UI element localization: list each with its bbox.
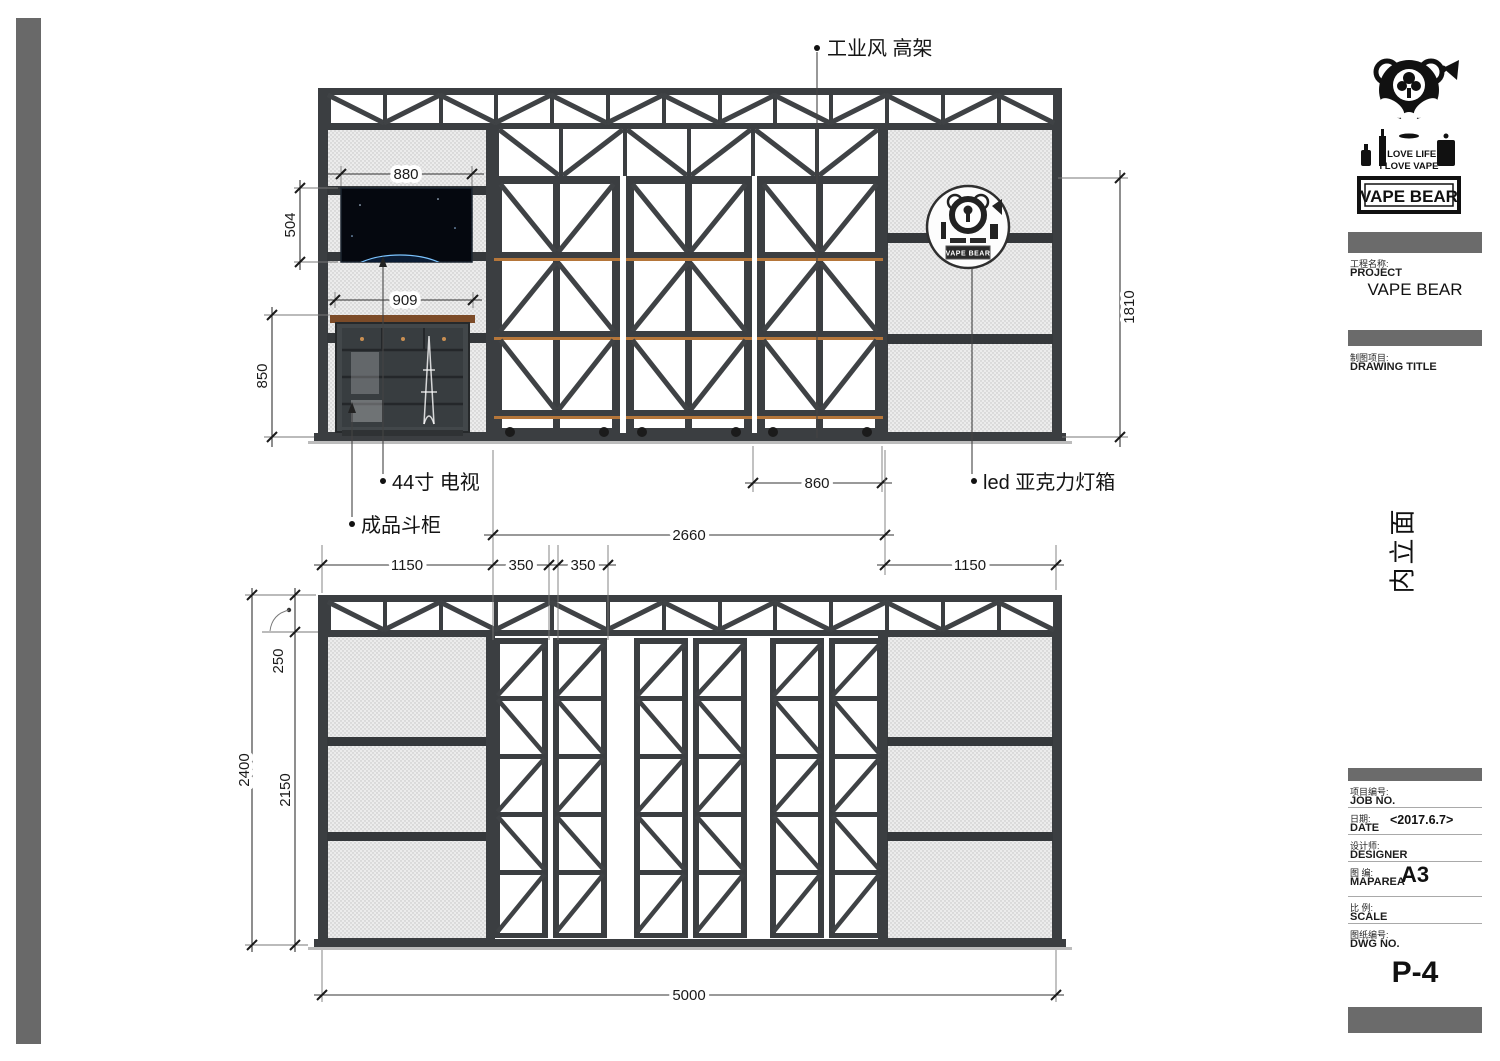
shelf-rack-1 [494, 176, 620, 437]
dim-cabinet-height: 850 [254, 363, 271, 388]
titleblock-separator [1348, 834, 1482, 835]
logo-tagline-2: I LOVE VAPE [1380, 161, 1439, 172]
logo-brand-text: VAPE BEAR [1360, 187, 1458, 206]
logo-tagline-1: I LOVE LIFE [1382, 149, 1436, 160]
dim-total-height: 2400 [236, 753, 253, 786]
label-industrial-shelf: 工业风 高架 [827, 37, 933, 60]
scale-label-en: SCALE [1350, 911, 1387, 923]
upper-right-mesh-panel [887, 129, 1053, 433]
titleblock-bar-2 [1348, 330, 1482, 346]
titleblock-separator [1348, 807, 1482, 808]
titleblock-bar-3 [1348, 768, 1482, 781]
upper-elevation: VAPE BEAR 880 504 [254, 37, 1138, 537]
lightbox-badge-text: VAPE BEAR [946, 251, 991, 258]
dim-tv-width: 880 [393, 166, 418, 183]
elevation-drawings: VAPE BEAR 880 504 [0, 0, 1500, 1061]
dim-cabinet-width: 909 [392, 292, 417, 309]
titleblock-separator [1348, 923, 1482, 924]
titleblock-separator [1348, 896, 1482, 897]
led-lightbox-logo: VAPE BEAR [927, 186, 1009, 268]
dim-total-width: 5000 [672, 987, 705, 1004]
dim-truss-height: 250 [270, 648, 287, 673]
lattice-column-4 [693, 638, 747, 938]
upper-wall-band [495, 129, 876, 176]
dim-mid-width: 2660 [672, 527, 705, 544]
project-value: VAPE BEAR [1348, 280, 1482, 300]
date-value: <2017.6.7> [1390, 813, 1453, 827]
lower-left-mesh-panel [327, 636, 490, 939]
sheet-number: P-4 [1348, 956, 1482, 990]
lattice-column-6 [829, 638, 883, 938]
job-no-label-en: JOB NO. [1350, 795, 1395, 807]
dim-tv-height: 504 [282, 212, 299, 237]
shelf-rack-2 [626, 176, 752, 437]
drawing-sheet: VAPE BEAR 880 504 [0, 0, 1500, 1061]
dim-right-panel-width: 1150 [954, 557, 986, 574]
dim-left-panel-width: 1150 [391, 557, 423, 574]
dim-rack-width: 860 [804, 475, 829, 492]
lattice-column-2 [553, 638, 607, 938]
lower-right-mesh-panel [887, 636, 1053, 939]
dim-lightbox-height: 1810 [1121, 290, 1138, 323]
maparea-value: A3 [1348, 862, 1482, 888]
label-cabinet: 成品斗柜 [361, 514, 441, 537]
orientation-label: 内立面 [1388, 503, 1418, 598]
titleblock-bar-4 [1348, 1007, 1482, 1033]
vape-bear-logo: I LOVE LIFE I LOVE VAPE VAPE BEAR [1353, 40, 1465, 218]
dim-column-a: 350 [508, 557, 533, 574]
titleblock-bar-1 [1348, 232, 1482, 253]
dwg-no-label-en: DWG NO. [1350, 938, 1400, 950]
project-label-en: PROJECT [1350, 267, 1402, 279]
lattice-column-1 [494, 638, 548, 938]
shelf-rack-3 [757, 176, 883, 437]
dim-body-height: 2150 [277, 773, 294, 806]
drawing-title-label-en: DRAWING TITLE [1350, 361, 1437, 373]
lattice-column-3 [634, 638, 688, 938]
date-label-en: DATE [1350, 822, 1379, 834]
label-tv: 44寸 电视 [392, 471, 480, 494]
label-led-lightbox: led 亚克力灯箱 [983, 471, 1115, 494]
lattice-column-5 [770, 638, 824, 938]
designer-label-en: DESIGNER [1350, 849, 1407, 861]
dim-column-b: 350 [570, 557, 595, 574]
